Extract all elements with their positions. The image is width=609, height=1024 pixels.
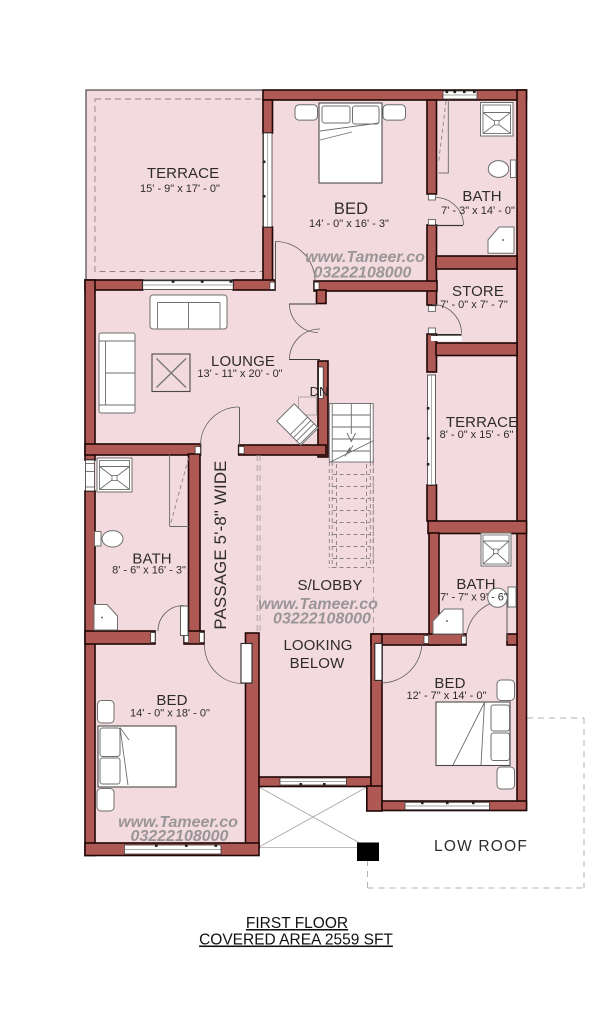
- svg-text:BATH: BATH: [456, 576, 495, 593]
- svg-text:14' - 0" x 18' - 0": 14' - 0" x 18' - 0": [130, 708, 210, 720]
- svg-text:BED: BED: [334, 200, 368, 218]
- svg-text:FIRST FLOOR: FIRST FLOOR: [246, 915, 348, 932]
- svg-text:7' - 3" x 14' - 0": 7' - 3" x 14' - 0": [441, 205, 515, 217]
- svg-text:7' - 0" x 7' - 7": 7' - 0" x 7' - 7": [440, 299, 508, 311]
- svg-text:12' - 7" x 14' - 0": 12' - 7" x 14' - 0": [407, 690, 487, 702]
- svg-text:COVERED AREA 2559 SFT: COVERED AREA 2559 SFT: [199, 932, 393, 949]
- svg-text:03222108000: 03222108000: [131, 828, 229, 845]
- svg-text:7' - 7" x 9' - 6": 7' - 7" x 9' - 6": [440, 592, 508, 604]
- svg-text:15' - 9" x 17' - 0": 15' - 9" x 17' - 0": [140, 183, 220, 195]
- svg-text:S/LOBBY: S/LOBBY: [298, 577, 363, 594]
- svg-text:DN: DN: [310, 384, 329, 399]
- svg-text:STORE: STORE: [452, 283, 504, 300]
- svg-text:BELOW: BELOW: [290, 655, 345, 672]
- svg-text:LOW ROOF: LOW ROOF: [434, 838, 528, 855]
- svg-text:BED: BED: [156, 692, 187, 709]
- svg-text:13' - 11" x 20' - 0": 13' - 11" x 20' - 0": [197, 368, 282, 380]
- svg-text:03222108000: 03222108000: [273, 611, 371, 628]
- svg-text:LOOKING: LOOKING: [283, 637, 352, 654]
- svg-text:PASSAGE 5'-8" WIDE: PASSAGE 5'-8" WIDE: [211, 460, 230, 629]
- svg-text:03222108000: 03222108000: [314, 265, 412, 282]
- svg-text:8' - 0" x 15' - 6": 8' - 0" x 15' - 6": [440, 429, 514, 441]
- svg-text:8' - 6" x 16' - 3": 8' - 6" x 16' - 3": [112, 565, 186, 577]
- svg-text:BATH: BATH: [462, 188, 501, 205]
- svg-text:TERRACE: TERRACE: [147, 165, 219, 182]
- svg-text:14' - 0" x 16' - 3": 14' - 0" x 16' - 3": [309, 218, 389, 230]
- svg-text:www.Tameer.co: www.Tameer.co: [305, 249, 425, 266]
